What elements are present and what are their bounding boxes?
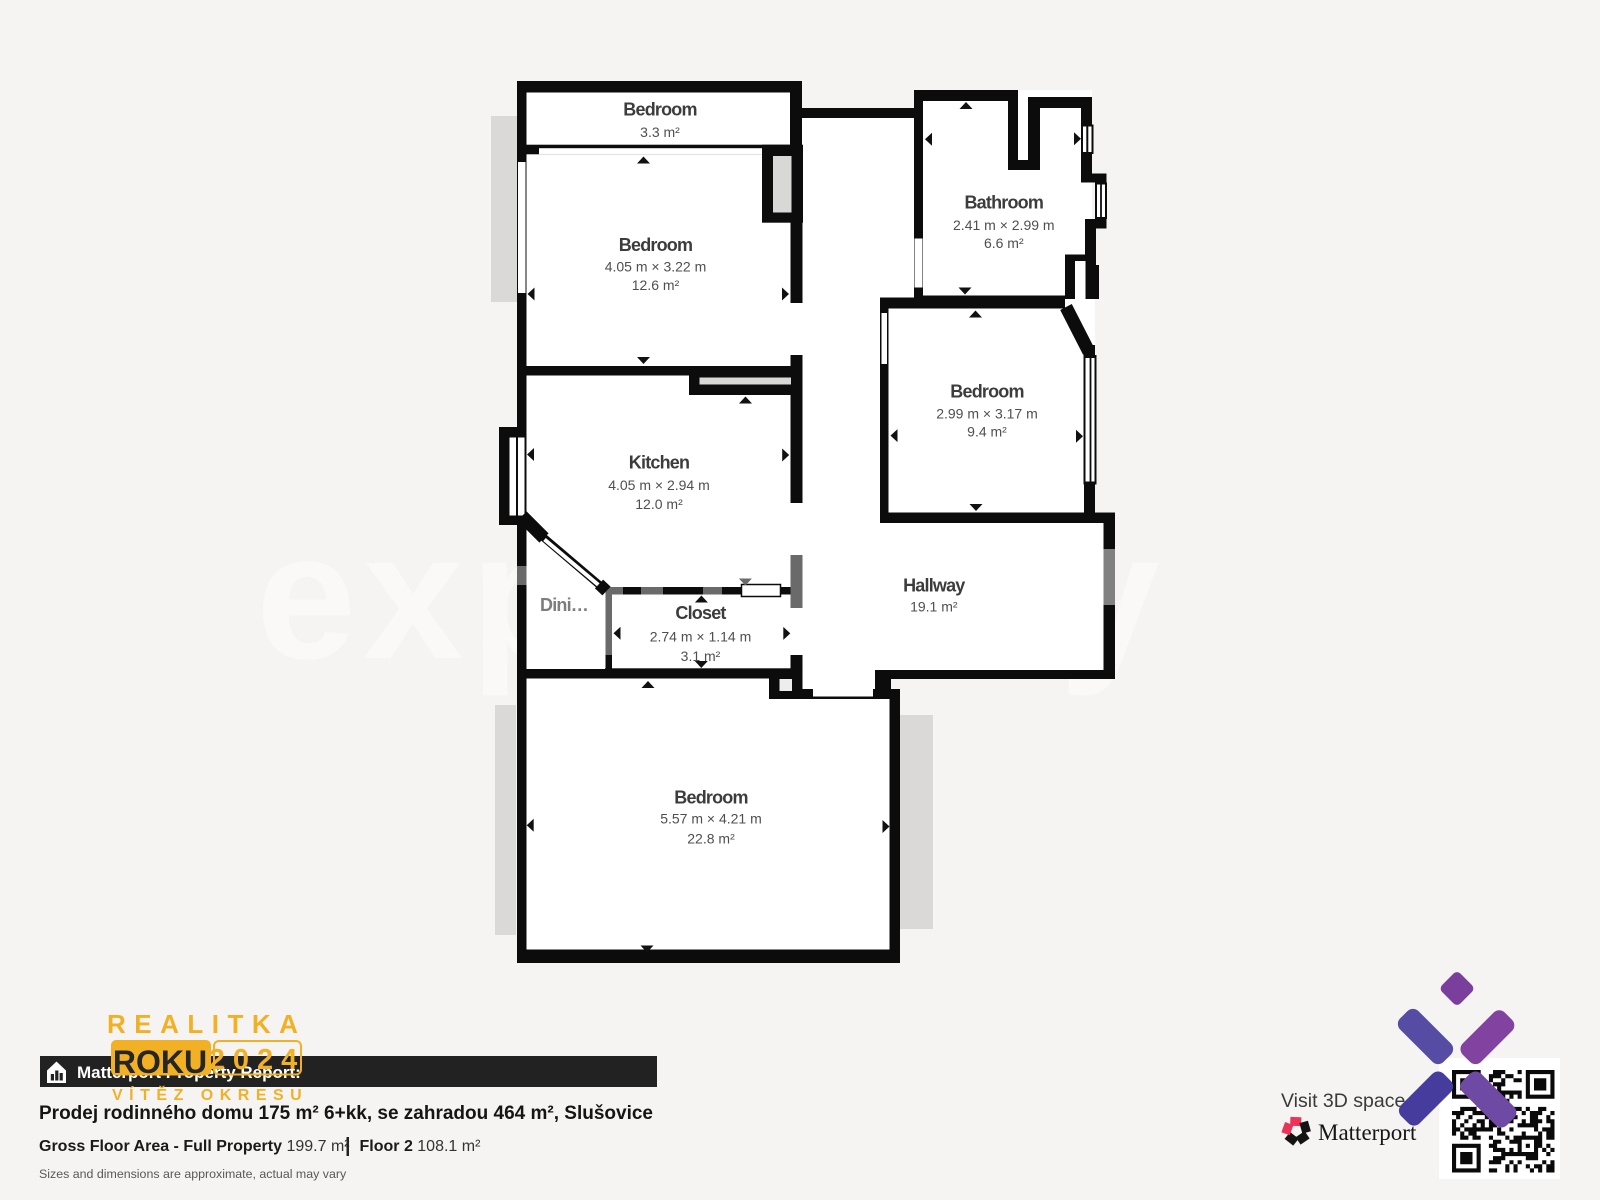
svg-text:REALITKA: REALITKA	[107, 1009, 306, 1039]
svg-text:22.8 m²: 22.8 m²	[687, 831, 735, 847]
svg-text:Floor 2 108.1 m²: Floor 2 108.1 m²	[360, 1138, 482, 1155]
svg-text:2.99 m × 3.17 m: 2.99 m × 3.17 m	[936, 406, 1038, 422]
svg-text:Gross Floor Area - Full Proper: Gross Floor Area - Full Property 199.7 m…	[39, 1138, 350, 1155]
svg-text:9.4 m²: 9.4 m²	[967, 424, 1007, 440]
svg-text:12.6 m²: 12.6 m²	[632, 277, 680, 293]
svg-text:Sizes and dimensions are appro: Sizes and dimensions are approximate, ac…	[39, 1167, 347, 1181]
svg-text:5.57 m × 4.21 m: 5.57 m × 4.21 m	[660, 811, 762, 827]
svg-text:3.3 m²: 3.3 m²	[640, 124, 680, 140]
svg-text:2.74 m × 1.14 m: 2.74 m × 1.14 m	[650, 629, 752, 645]
svg-text:6.6 m²: 6.6 m²	[984, 235, 1024, 251]
svg-text:3.1 m²: 3.1 m²	[681, 648, 721, 664]
svg-text:12.0 m²: 12.0 m²	[635, 496, 683, 512]
svg-text:Kitchen: Kitchen	[629, 453, 689, 473]
svg-text:19.1 m²: 19.1 m²	[910, 599, 958, 615]
svg-text:4.05 m × 2.94 m: 4.05 m × 2.94 m	[608, 477, 710, 493]
svg-text:2.41 m × 2.99 m: 2.41 m × 2.99 m	[953, 217, 1055, 233]
svg-text:4.05 m × 3.22 m: 4.05 m × 3.22 m	[605, 259, 707, 275]
svg-text:Bedroom: Bedroom	[623, 100, 696, 120]
svg-text:Hallway: Hallway	[903, 576, 965, 596]
svg-text:Dini…: Dini…	[540, 595, 588, 615]
svg-text:Bathroom: Bathroom	[964, 193, 1043, 213]
svg-text:Closet: Closet	[675, 603, 726, 623]
svg-text:Bedroom: Bedroom	[950, 382, 1023, 402]
svg-text:Prodej rodinného domu 175 m² 6: Prodej rodinného domu 175 m² 6+kk, se za…	[39, 1103, 653, 1124]
svg-text:2024: 2024	[209, 1044, 306, 1076]
svg-text:Bedroom: Bedroom	[674, 788, 747, 808]
svg-text:Matterport: Matterport	[1318, 1120, 1417, 1145]
svg-text:ROKU: ROKU	[113, 1044, 207, 1080]
svg-text:VÍTĚZ OKRESU: VÍTĚZ OKRESU	[112, 1085, 308, 1104]
svg-text:Bedroom: Bedroom	[619, 235, 692, 255]
